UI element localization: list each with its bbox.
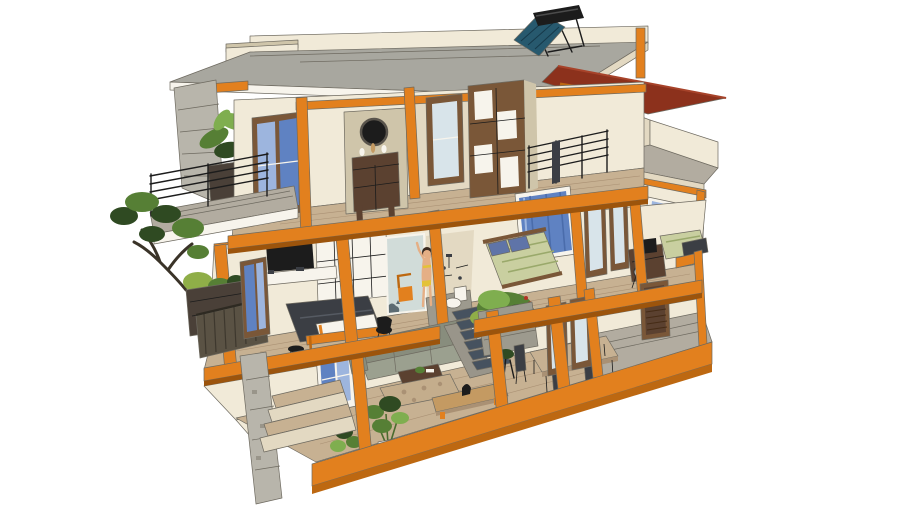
f3-door [426,94,464,186]
house-cutaway-rendering: 3D dollhouse-style cutaway of a three-st… [0,0,900,522]
newel-post [552,140,560,184]
wardrobe [468,80,538,198]
round-mirror [361,119,387,145]
f2-left-window [240,257,270,339]
roof-back-post [636,28,645,78]
prayer-room [344,108,408,223]
cutaway-canvas [0,0,900,522]
